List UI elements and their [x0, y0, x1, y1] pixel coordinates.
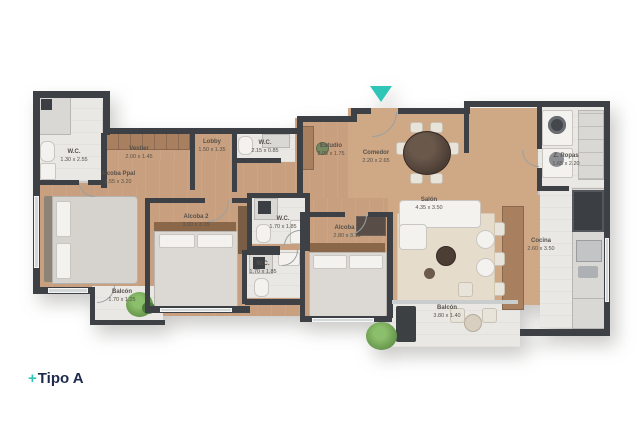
armchair — [476, 258, 495, 277]
window — [160, 308, 232, 312]
room-dims: 1.65 x 2.20 — [552, 161, 579, 168]
room-name: Lobby — [198, 139, 225, 147]
room-label-comedor: Comedor 2.20 x 2.65 — [362, 150, 389, 164]
room-dims: 3.55 x 3.20 — [101, 179, 135, 186]
wall-segment — [33, 180, 79, 185]
dining-chair — [410, 173, 423, 184]
room-name: Comedor — [362, 150, 389, 158]
room-dims: 2.15 x 0.85 — [251, 148, 278, 155]
wall-segment — [537, 186, 569, 191]
wall-segment — [145, 198, 205, 203]
patio-table — [464, 314, 482, 332]
wall-segment — [368, 212, 390, 217]
room-label-wc-alcoba2: W.C. 1.70 x 1.85 — [269, 216, 296, 230]
pillow — [313, 255, 347, 269]
cooktop-icon — [576, 240, 602, 262]
pouf — [458, 282, 473, 297]
sink-master — [40, 163, 56, 180]
room-name: Cocina — [527, 238, 554, 246]
wall-segment — [242, 250, 280, 255]
room-label-vestier: Vestier 2.00 x 1.45 — [125, 146, 152, 160]
kitchen-island — [502, 206, 524, 310]
fridge-icon — [572, 298, 606, 329]
room-label-estudio: Estudio 2.05 x 1.75 — [317, 143, 344, 157]
room-dims: 1.50 x 1.35 — [198, 147, 225, 154]
room-dims: 3.00 x 3.15 — [182, 222, 209, 229]
toilet-master — [40, 141, 55, 162]
room-dims: 2.60 x 3.50 — [527, 246, 554, 253]
oven-tower-icon — [572, 190, 604, 232]
plant-icon — [366, 322, 397, 350]
bed-headboard-3 — [309, 243, 385, 252]
room-label-alcoba-3: Alcoba 3 2.80 x 3.15 — [333, 225, 360, 239]
armchair — [476, 230, 495, 249]
floorplan: W.C. 1.30 x 2.55 Vestier 2.00 x 1.45 Alc… — [0, 0, 640, 427]
wall-segment — [103, 128, 303, 134]
patio-chair — [482, 308, 497, 323]
wall-segment — [305, 193, 310, 251]
laundry-shelf — [578, 110, 604, 180]
room-label-wc-alcoba3: W.C. 1.70 x 1.85 — [249, 261, 276, 275]
room-name: Vestier — [125, 146, 152, 154]
wall-segment — [237, 158, 281, 163]
title-plus: + — [28, 370, 37, 387]
wall-segment — [145, 198, 150, 313]
dining-table — [403, 131, 451, 175]
balcony-glass-door — [392, 300, 518, 304]
room-name: Alcoba 3 — [333, 225, 360, 233]
room-dims: 2.20 x 2.65 — [362, 158, 389, 165]
room-label-lobby: Lobby 1.50 x 1.35 — [198, 139, 225, 153]
room-name: W.C. — [251, 140, 278, 148]
room-name: Z. Ropas — [552, 153, 579, 161]
room-name: Alcoba Ppal — [101, 171, 135, 179]
shower-head-icon — [258, 201, 271, 214]
wall-segment — [297, 134, 303, 194]
dining-chair — [430, 173, 443, 184]
window — [34, 196, 39, 268]
pillow — [56, 243, 71, 279]
wall-segment — [398, 108, 470, 114]
room-label-alcoba-ppal: Alcoba Ppal 3.55 x 3.20 — [101, 171, 135, 185]
room-name: W.C. — [249, 261, 276, 269]
wardrobe-alcoba-2 — [238, 206, 247, 254]
wall-segment — [242, 250, 247, 304]
wall-segment — [351, 108, 371, 114]
room-name: Salón — [415, 197, 442, 205]
bicycle-icon — [396, 306, 416, 342]
room-dims: 1.70 x 1.85 — [269, 224, 296, 231]
window — [605, 238, 609, 302]
wall-segment — [33, 91, 110, 98]
wall-segment — [300, 212, 345, 217]
room-label-cocina: Cocina 2.60 x 3.50 — [527, 238, 554, 252]
room-name: Alcoba 2 — [182, 214, 209, 222]
room-dims: 2.80 x 3.15 — [333, 233, 360, 240]
room-dims: 3.80 x 1.40 — [433, 313, 460, 320]
room-name: W.C. — [269, 216, 296, 224]
wall-segment — [245, 299, 305, 305]
room-dims: 2.00 x 1.45 — [125, 154, 152, 161]
floorplan-page: W.C. 1.30 x 2.55 Vestier 2.00 x 1.45 Alc… — [0, 0, 640, 427]
shower-head-icon — [41, 99, 52, 110]
wall-segment — [247, 193, 310, 198]
wall-segment — [90, 320, 165, 325]
wall-segment — [297, 116, 357, 122]
pillow — [349, 255, 383, 269]
wall-segment — [464, 107, 469, 153]
window — [312, 318, 374, 322]
room-dims: 1.70 x 1.85 — [249, 269, 276, 276]
room-dims: 1.70 x 1.25 — [108, 297, 135, 304]
title-text: Tipo A — [38, 370, 84, 387]
room-label-alcoba-2: Alcoba 2 3.00 x 3.15 — [182, 214, 209, 228]
window — [48, 288, 88, 293]
sofa-chaise — [399, 224, 427, 250]
room-label-balcon-2: Balcón 3.80 x 1.40 — [433, 305, 460, 319]
wall-segment — [190, 128, 195, 190]
pillow — [197, 234, 233, 248]
room-dims: 1.30 x 2.55 — [60, 157, 87, 164]
room-label-zona-ropas: Z. Ropas 1.65 x 2.20 — [552, 153, 579, 167]
toilet-wc3 — [254, 278, 269, 297]
room-label-balcon-1: Balcón 1.70 x 1.25 — [108, 289, 135, 303]
wall-segment — [300, 212, 305, 320]
kitchen-sink — [578, 266, 598, 278]
pillow — [56, 201, 71, 237]
room-name: Balcón — [108, 289, 135, 297]
coffee-table — [436, 246, 456, 266]
plan-title: +Tipo A — [28, 370, 84, 387]
washer-door-icon — [548, 116, 566, 134]
wall-segment — [520, 329, 610, 336]
room-dims: 2.05 x 1.75 — [317, 151, 344, 158]
pillow — [159, 234, 195, 248]
room-label-salon: Salón 4.35 x 3.50 — [415, 197, 442, 211]
room-dims: 4.35 x 3.50 — [415, 205, 442, 212]
room-label-wc-ppal: W.C. 1.30 x 2.55 — [60, 149, 87, 163]
room-label-wc-social: W.C. 2.15 x 0.85 — [251, 140, 278, 154]
side-table — [424, 268, 435, 279]
room-name: Estudio — [317, 143, 344, 151]
wall-segment — [537, 101, 542, 149]
room-name: W.C. — [60, 149, 87, 157]
wall-segment — [247, 193, 252, 251]
room-name: Balcón — [433, 305, 460, 313]
entrance-arrow-icon — [370, 86, 392, 102]
